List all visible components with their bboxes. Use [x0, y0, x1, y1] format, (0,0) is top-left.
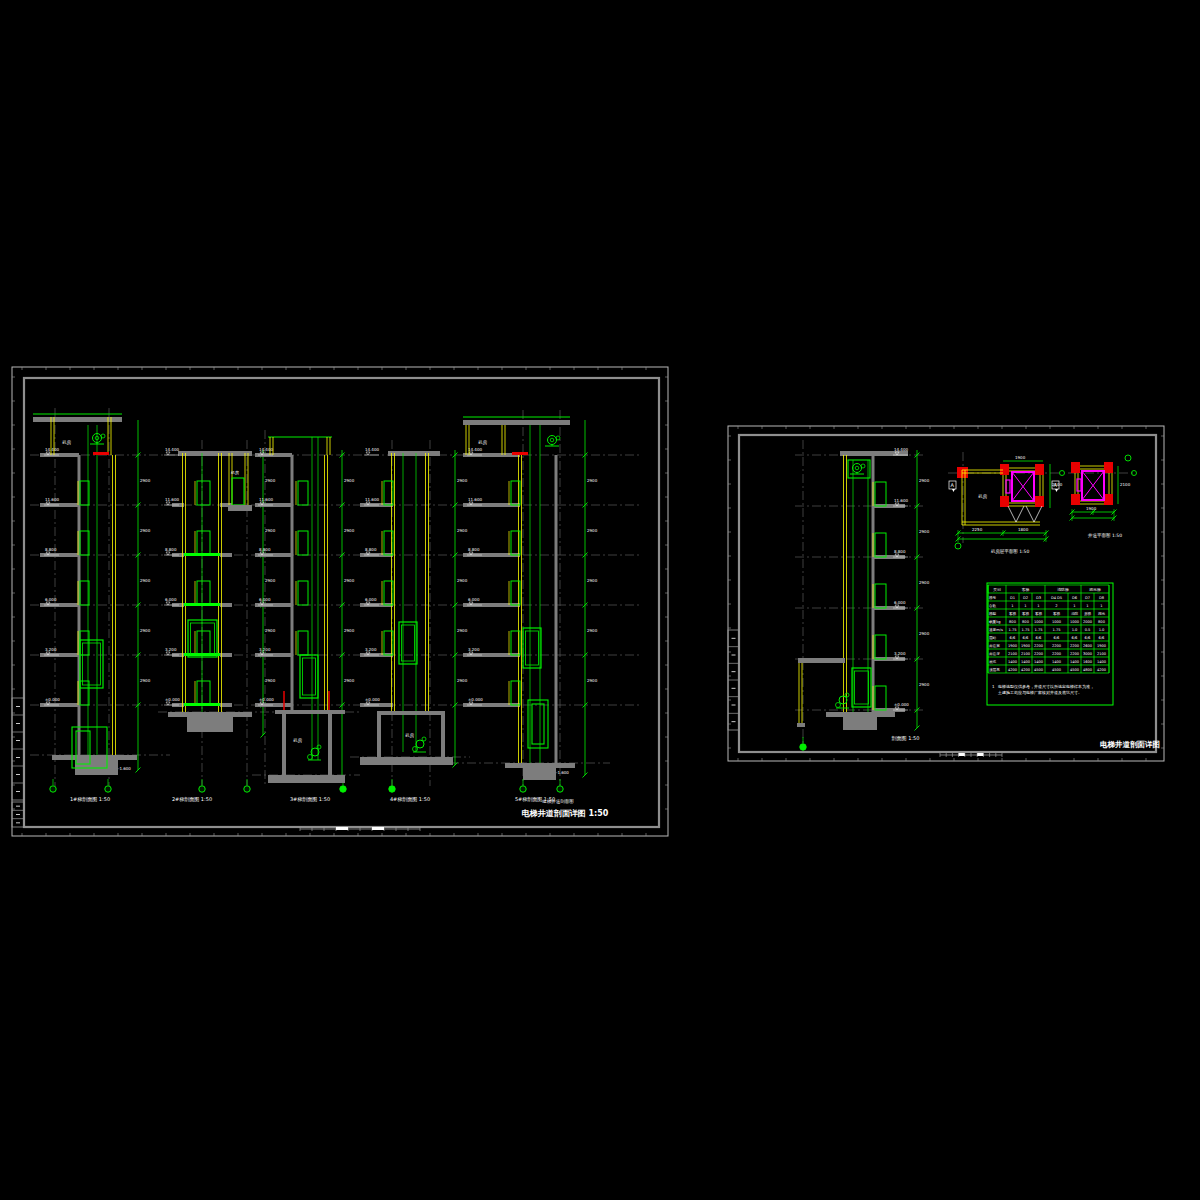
elevator-cab-inner: [855, 671, 869, 704]
drawing-area: 2900290029002900290014.40011.6008.8006.0…: [0, 0, 1200, 1200]
table-cell: 2200: [1070, 652, 1080, 656]
elevator-section: 2900290029002900290014.40011.6008.8006.0…: [33, 408, 151, 792]
table-header-cell: 类别: [993, 587, 1001, 592]
level-label: 6.000: [259, 597, 271, 602]
table-cell: 1000: [1052, 620, 1062, 624]
table-cell: 1.75: [1052, 628, 1060, 632]
plan1-caption: 机房层平面图 1:50: [975, 549, 1045, 554]
detail-label: -1.600: [556, 770, 569, 775]
title-strip: [12, 802, 24, 827]
detail-label: 机房: [293, 738, 303, 743]
detail-label: 2250: [972, 527, 983, 532]
table-cell: 客梯: [1035, 611, 1043, 616]
table-cell: 6/6: [1036, 636, 1042, 640]
detail-rect: [798, 658, 845, 663]
level-label: ±0.000: [45, 697, 60, 702]
machine-wheel: [853, 464, 862, 473]
machine-room-plan: 1900AA225018002100机房: [948, 452, 1065, 549]
landing-door: [875, 584, 886, 608]
detail-rect: [377, 711, 445, 715]
table-cell: 1900: [1021, 644, 1031, 648]
elevator-section: 2900290029002900290014.40011.6008.8006.0…: [164, 440, 276, 792]
machine-sheave: [101, 434, 105, 438]
detail-rect: [232, 478, 244, 505]
detail-rect: [377, 713, 381, 757]
level-label: 14.400: [468, 447, 482, 452]
table-cell: D2: [1023, 596, 1028, 600]
detail-rect: [463, 420, 570, 425]
table-header-cell: 观光梯: [1089, 587, 1101, 592]
table-cell: 1400: [1008, 660, 1018, 664]
landing-door: [197, 481, 210, 505]
level-label: 14.400: [259, 447, 273, 452]
level-label: 3.200: [165, 647, 177, 652]
machine-hub: [855, 466, 859, 470]
detail-label: 1800: [1018, 527, 1029, 532]
table-cell: 客梯: [1022, 611, 1030, 616]
elevator-cab-inner: [83, 643, 101, 685]
detail-rect: [1035, 496, 1044, 507]
detail-rect: [532, 704, 544, 744]
detail-rect: [268, 775, 345, 783]
detail-label: 1900: [1015, 455, 1026, 460]
flag-arrow: [1055, 489, 1058, 492]
table-cell: 底坑: [989, 659, 997, 664]
roof-slab: [178, 451, 252, 456]
detail-rect: [1077, 479, 1081, 491]
flag-letter: A: [951, 482, 955, 488]
dim-label: 2900: [457, 578, 468, 583]
detail-rect: [282, 712, 286, 775]
traction-machine: [850, 464, 865, 475]
table-cell: 台数: [989, 604, 997, 608]
pit-machine: [836, 693, 850, 708]
table-cell: 6/6: [1010, 636, 1016, 640]
table-cell: 2200: [1052, 644, 1062, 648]
table-cell: 2100: [1097, 652, 1107, 656]
table-cell: 层站: [989, 636, 997, 640]
landing-door: [875, 635, 886, 659]
section-cut-flag: A: [949, 481, 956, 492]
table-cell: 顶层高: [989, 667, 1000, 672]
level-triangle: [166, 702, 170, 705]
machine-wheel: [422, 737, 426, 741]
elevator-section: 2900290029002900290014.40011.6008.8006.0…: [795, 440, 930, 750]
door-swing: [1026, 506, 1042, 522]
table-cell: 1.0: [1099, 628, 1105, 632]
grid-bubble: [800, 744, 806, 750]
pit-foundation: [52, 755, 137, 775]
section-caption-3: 3#梯剖面图 1:50: [275, 796, 345, 802]
table-cell: 1.75: [1008, 628, 1016, 632]
detail-label: 机房: [478, 440, 488, 445]
grid-bubble: [389, 786, 395, 792]
table-cell: 2200: [1070, 644, 1080, 648]
level-label: 6.000: [468, 597, 480, 602]
table-cell: 2200: [1034, 652, 1044, 656]
level-label: 8.800: [894, 549, 906, 554]
detail-rect: [1104, 494, 1113, 505]
table-cell: 1: [1011, 604, 1013, 608]
detail-rect: [848, 460, 870, 478]
table-cell: 1400: [1097, 660, 1107, 664]
level-label: 14.400: [165, 447, 179, 452]
table-cell: D3: [1036, 596, 1041, 600]
table-cell: 2000: [1083, 620, 1093, 624]
pit-foundation: [826, 712, 895, 730]
dim-label: 2900: [587, 478, 598, 483]
detail-rect: [328, 712, 332, 775]
dim-label: 2900: [344, 478, 355, 483]
section-caption-1: 1#梯剖面图 1:50: [55, 796, 125, 802]
table-cell: 1: [1100, 604, 1102, 608]
level-label: ±0.000: [468, 697, 483, 702]
table-cell: 4200: [1008, 668, 1018, 672]
landing-door: [298, 481, 308, 505]
table-cell: D6: [1072, 596, 1078, 600]
detail-label: 2100: [1120, 482, 1131, 487]
sill: [184, 553, 220, 556]
scale-block: [977, 753, 983, 756]
table-note-line-2: 土建施工前应与电梯厂家核对井道及底坑尺寸。: [998, 690, 1118, 695]
dim-label: 2900: [140, 528, 151, 533]
table-cell: 6/6: [1023, 636, 1029, 640]
table-cell: 1900: [1008, 644, 1018, 648]
detail-label: 机房: [230, 470, 239, 475]
landing-door: [197, 581, 210, 605]
table-cell: 消防: [1071, 611, 1079, 616]
dim-label: 2900: [919, 580, 930, 585]
scale-block: [372, 827, 384, 830]
shaft-wall: [291, 455, 294, 712]
pit-machine: [413, 737, 427, 752]
detail-rect: [441, 713, 445, 757]
landing-door: [298, 631, 308, 655]
table-cell: 3000: [1083, 652, 1093, 656]
landing-door: [875, 686, 886, 710]
grid-bubble: [557, 786, 563, 792]
table-cell: 速度m/s: [989, 627, 1003, 632]
dim-label: 2900: [140, 678, 151, 683]
table-cell: 6/6: [1054, 636, 1060, 640]
table-cell: 观光: [1098, 612, 1106, 616]
left-sheet: 2900290029002900290014.40011.6008.8006.0…: [12, 367, 668, 836]
level-label: 8.800: [259, 547, 271, 552]
cad-drawing-svg: 2900290029002900290014.40011.6008.8006.0…: [0, 0, 1200, 1200]
elevator-section: 2900290029002900290014.40011.6008.8006.0…: [463, 410, 598, 792]
level-label: 8.800: [365, 547, 377, 552]
machine-wheel: [317, 745, 321, 749]
dim-label: 2900: [919, 478, 930, 483]
table-cell: 4500: [1070, 668, 1080, 672]
landing-door: [197, 531, 210, 555]
level-triangle: [166, 552, 170, 555]
grid-bubble: [955, 543, 961, 549]
grid-bubble: [1125, 455, 1131, 461]
flag-arrow: [952, 489, 955, 492]
level-label: 11.600: [468, 497, 482, 502]
right-sheet-frame: [728, 426, 1164, 761]
table-cell: 客梯: [1053, 611, 1061, 616]
table-cell: D4 D5: [1051, 596, 1062, 600]
level-label: 3.200: [894, 651, 906, 656]
right-section-caption: 剖面图 1:50: [878, 735, 933, 741]
table-cell: 2100: [1021, 652, 1031, 656]
table-cell: 1: [1037, 604, 1039, 608]
right-sheet: 2900290029002900290014.40011.6008.8006.0…: [728, 426, 1164, 761]
elevator-cab-inner: [402, 625, 415, 661]
table-cell: 1400: [1070, 660, 1080, 664]
table-cell: 1.0: [1072, 628, 1078, 632]
table-cell: 800: [1098, 620, 1106, 624]
level-label: ±0.000: [259, 697, 274, 702]
traction-machine: [90, 434, 105, 445]
detail-rect: [957, 467, 968, 478]
elevator-section: 2900290029002900290014.40011.6008.8006.0…: [360, 440, 468, 792]
shaft-plan: 19002100: [1068, 455, 1137, 521]
detail-rect: [1000, 496, 1009, 507]
landing-door: [298, 581, 308, 605]
left-sheet-title: 电梯井道剖面详图 1:50: [505, 808, 625, 819]
table-cell: 6/6: [1085, 636, 1091, 640]
level-label: ±0.000: [165, 697, 180, 702]
level-label: 8.800: [165, 547, 177, 552]
level-triangle: [166, 502, 170, 505]
roof-slab: [388, 451, 440, 456]
table-cell: 0.5: [1085, 628, 1091, 632]
level-label: 14.400: [365, 447, 379, 452]
detail-label: 机房: [62, 440, 72, 445]
level-label: ±0.000: [365, 697, 380, 702]
elevator-cab-inner: [526, 631, 539, 665]
table-cell: 1.75: [1034, 628, 1042, 632]
table-cell: 2600: [1083, 644, 1093, 648]
table-cell: D1: [1010, 596, 1015, 600]
table-cell: 梯号: [988, 596, 997, 600]
detail-label: -1.600: [118, 766, 131, 771]
dim-label: 2900: [919, 631, 930, 636]
dim-label: 2900: [457, 678, 468, 683]
level-label: ±0.000: [894, 702, 909, 707]
pit-foundation: [168, 712, 252, 732]
section-caption-2: 2#梯剖面图 1:50: [157, 796, 227, 802]
plan2-caption: 井道平面图 1:50: [1070, 533, 1140, 538]
grid-bubble: [50, 786, 56, 792]
dim-label: 2900: [344, 578, 355, 583]
sill: [184, 603, 220, 606]
table-cell: 2200: [1052, 652, 1062, 656]
table-cell: 4500: [1034, 668, 1044, 672]
elevator-cab-inner: [303, 658, 316, 695]
table-cell: 1: [1024, 604, 1026, 608]
table-cell: 800: [1009, 620, 1017, 624]
grid-bubble: [520, 786, 526, 792]
dim-label: 2900: [587, 678, 598, 683]
machine-hub: [550, 438, 554, 442]
dim-label: 2900: [140, 628, 151, 633]
table-cell: 4200: [1097, 668, 1107, 672]
section-caption-4: 4#梯剖面图 1:50: [375, 796, 445, 802]
dim-label: 2900: [457, 478, 468, 483]
dim-label: 2900: [457, 628, 468, 633]
shaft-wall: [555, 455, 558, 763]
table-cell: 载重kg: [989, 619, 1001, 624]
sheet-inner-border: [739, 435, 1156, 752]
table-cell: 1: [1086, 604, 1088, 608]
table-cell: 1400: [1052, 660, 1062, 664]
right-sheet-title: 电梯井道剖面详图: [1085, 740, 1160, 750]
table-note-line-1: 电梯选型仅供参考，井道尺寸以所选定电梯样本为准，: [998, 684, 1118, 689]
door-swing: [1008, 506, 1024, 522]
dim-label: 2900: [587, 528, 598, 533]
sheet-outer-border: [728, 426, 1164, 761]
dim-label: 2900: [587, 628, 598, 633]
landing-door: [875, 533, 886, 557]
level-triangle: [166, 602, 170, 605]
pit-machine: [308, 745, 322, 760]
level-label: 6.000: [365, 597, 377, 602]
dim-label: 2900: [265, 478, 276, 483]
dim-label: 2900: [265, 578, 276, 583]
table-header-cell: 消防梯: [1057, 587, 1069, 592]
machine-wheel: [413, 747, 418, 752]
machine-sheave: [556, 436, 560, 440]
table-cell: 1000: [1034, 620, 1044, 624]
table-header-cell: 客梯: [1022, 587, 1030, 592]
level-triangle: [166, 652, 170, 655]
level-triangle: [366, 452, 370, 455]
level-triangle: [166, 452, 170, 455]
level-label: 11.600: [45, 497, 59, 502]
dim-label: 2900: [140, 478, 151, 483]
grid-bubble: [340, 786, 346, 792]
level-label: 3.200: [468, 647, 480, 652]
table-cell: 4800: [1083, 668, 1093, 672]
detail-rect: [228, 505, 252, 511]
detail-rect: [360, 757, 453, 765]
table-cell: 6/6: [1099, 636, 1105, 640]
machine-wheel: [839, 696, 847, 704]
dim-label: 2900: [919, 529, 930, 534]
dim-label: 2900: [265, 678, 276, 683]
dim-label: 2900: [265, 628, 276, 633]
level-label: 11.600: [894, 498, 908, 503]
scale-block: [336, 827, 348, 830]
level-label: 11.600: [365, 497, 379, 502]
level-label: 3.200: [45, 647, 57, 652]
detail-label: 1900: [1086, 506, 1097, 511]
machine-sheave: [861, 464, 865, 468]
level-label: 11.600: [259, 497, 273, 502]
landing-door: [197, 681, 210, 705]
landing-door: [875, 482, 886, 506]
level-label: 14.400: [894, 447, 908, 452]
table-cell: 2200: [1034, 644, 1044, 648]
sill: [184, 703, 220, 706]
level-label: 3.200: [259, 647, 271, 652]
level-label: 6.000: [165, 597, 177, 602]
detail-rect: [93, 452, 109, 455]
table-cell: 2100: [1008, 652, 1018, 656]
traction-machine: [545, 436, 560, 447]
detail-rect: [1035, 464, 1044, 475]
level-label: 8.800: [468, 547, 480, 552]
dim-label: 2900: [919, 682, 930, 687]
cad-canvas: { "colors":{"bg":"#000000","border":"#b8…: [0, 0, 1200, 1200]
table-cell: 2: [1055, 604, 1057, 608]
machine-wheel: [416, 740, 424, 748]
table-cell: 1.75: [1021, 628, 1029, 632]
detail-rect: [512, 452, 528, 455]
table-cell: 1600: [1083, 660, 1093, 664]
grid-bubble: [244, 786, 250, 792]
detail-rect: [1006, 480, 1010, 493]
machine-wheel: [548, 436, 557, 445]
dim-label: 2900: [344, 678, 355, 683]
level-label: 3.200: [365, 647, 377, 652]
detail-rect: [1071, 462, 1080, 473]
table-cell: 1400: [1034, 660, 1044, 664]
level-label: 6.000: [894, 600, 906, 605]
table-cell: 梯型: [988, 611, 997, 616]
folding-scale-bar: [940, 753, 1002, 757]
elevator-cab-inner: [191, 623, 215, 654]
room-label: 机房: [978, 494, 988, 499]
detail-rect: [1104, 462, 1113, 473]
table-cell: 4200: [1021, 668, 1031, 672]
landing-door: [298, 531, 308, 555]
table-cell: 6/6: [1072, 636, 1078, 640]
table-cell: 井道深: [989, 652, 1000, 656]
table-cell: 4500: [1052, 668, 1062, 672]
section-caption-5: 5#梯剖面图 1:50: [500, 796, 570, 802]
table-cell: 客梯: [1009, 611, 1017, 616]
detail-rect: [528, 700, 548, 748]
dim-label: 2900: [265, 528, 276, 533]
level-label: 14.400: [45, 447, 59, 452]
dim-label: 2900: [587, 578, 598, 583]
table-cell: 井道宽: [989, 643, 1000, 648]
detail-rect: [33, 417, 122, 422]
landing-door: [197, 631, 210, 655]
scale-block: [959, 753, 965, 756]
table-cell: D7: [1085, 596, 1090, 600]
dim-label: 2900: [344, 528, 355, 533]
dim-label: 2900: [344, 628, 355, 633]
elevator-cab: [188, 620, 217, 657]
level-label: 8.800: [45, 547, 57, 552]
level-label: 11.600: [165, 497, 179, 502]
elevator-section: 2900290029002900290014.40011.6008.8006.0…: [255, 430, 355, 792]
table-cell: 货梯: [1084, 612, 1092, 616]
detail-label: 机房: [405, 733, 415, 738]
machine-wheel: [836, 703, 841, 708]
grid-bubble: [105, 786, 111, 792]
table-cell: 1000: [1070, 620, 1080, 624]
table-cell: 1: [1073, 604, 1075, 608]
dim-label: 2900: [457, 528, 468, 533]
grid-bubble: [199, 786, 205, 792]
detail-rect: [797, 723, 805, 727]
detail-label: 2100: [1052, 482, 1063, 487]
table-cell: 1900: [1097, 644, 1107, 648]
machine-wheel: [845, 693, 849, 697]
table-cell: D8: [1099, 596, 1105, 600]
title-strip: [728, 630, 739, 730]
level-label: 6.000: [45, 597, 57, 602]
detail-rect: [1071, 494, 1080, 505]
table-cell: 1400: [1021, 660, 1031, 664]
